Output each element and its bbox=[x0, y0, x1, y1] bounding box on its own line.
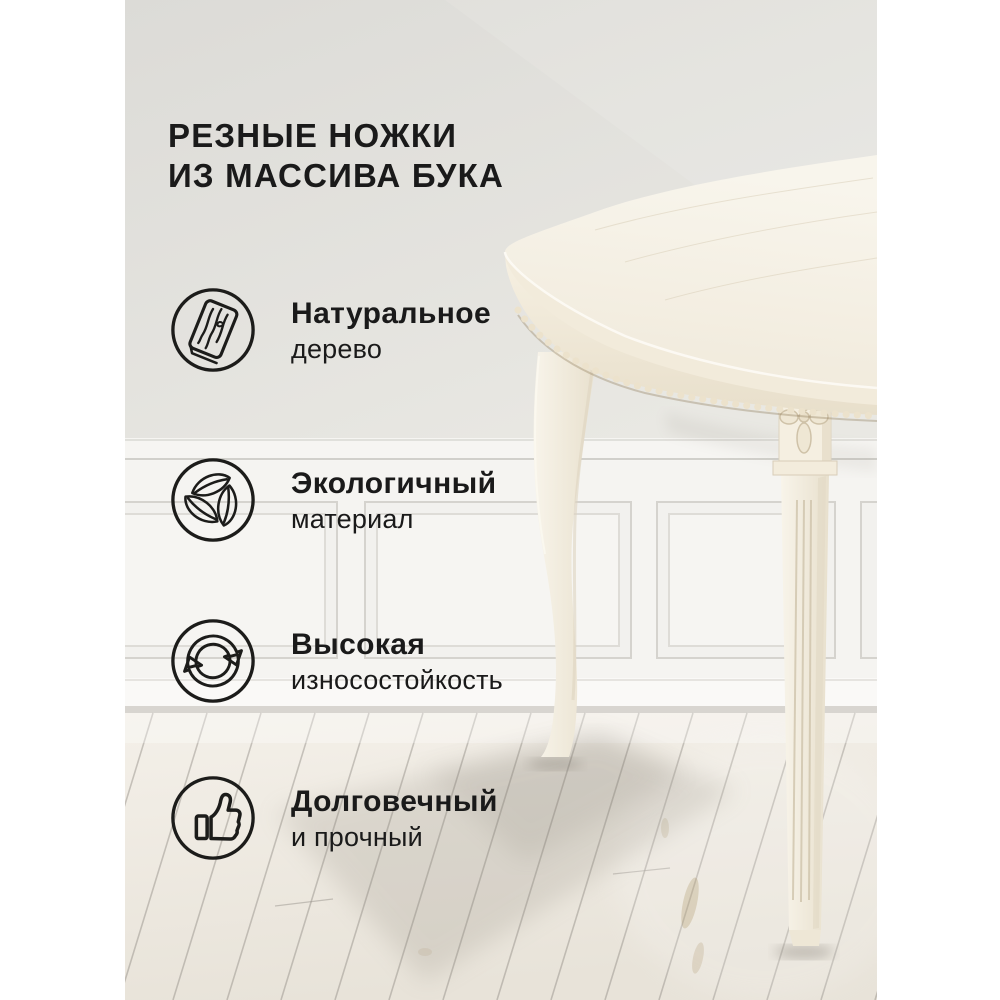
title-line-1: РЕЗНЫЕ НОЖКИ bbox=[168, 116, 504, 156]
eco-leaves-icon bbox=[168, 455, 258, 545]
feature-subtitle: и прочный bbox=[291, 820, 498, 854]
feature-title: Долговечный bbox=[291, 783, 498, 820]
wood-plank-icon bbox=[168, 285, 258, 375]
feature-eco-material: Экологичный материал bbox=[168, 455, 496, 545]
feature-durable: Долговечный и прочный bbox=[168, 773, 498, 863]
page-title: РЕЗНЫЕ НОЖКИ ИЗ МАССИВА БУКА bbox=[168, 116, 504, 196]
product-card: РЕЗНЫЕ НОЖКИ ИЗ МАССИВА БУКА Натуральное… bbox=[0, 0, 1000, 1000]
feature-title: Натуральное bbox=[291, 295, 491, 332]
feature-natural-wood: Натуральное дерево bbox=[168, 285, 491, 375]
feature-subtitle: дерево bbox=[291, 332, 491, 366]
feature-subtitle: износостойкость bbox=[291, 663, 503, 697]
feature-subtitle: материал bbox=[291, 502, 496, 536]
feature-title: Экологичный bbox=[291, 465, 496, 502]
feature-title: Высокая bbox=[291, 626, 503, 663]
thumbs-up-icon bbox=[168, 773, 258, 863]
cycle-arrows-icon bbox=[168, 616, 258, 706]
feature-wear-resistance: Высокая износостойкость bbox=[168, 616, 503, 706]
infographic-overlay: РЕЗНЫЕ НОЖКИ ИЗ МАССИВА БУКА Натуральное… bbox=[0, 0, 1000, 1000]
title-line-2: ИЗ МАССИВА БУКА bbox=[168, 156, 504, 196]
